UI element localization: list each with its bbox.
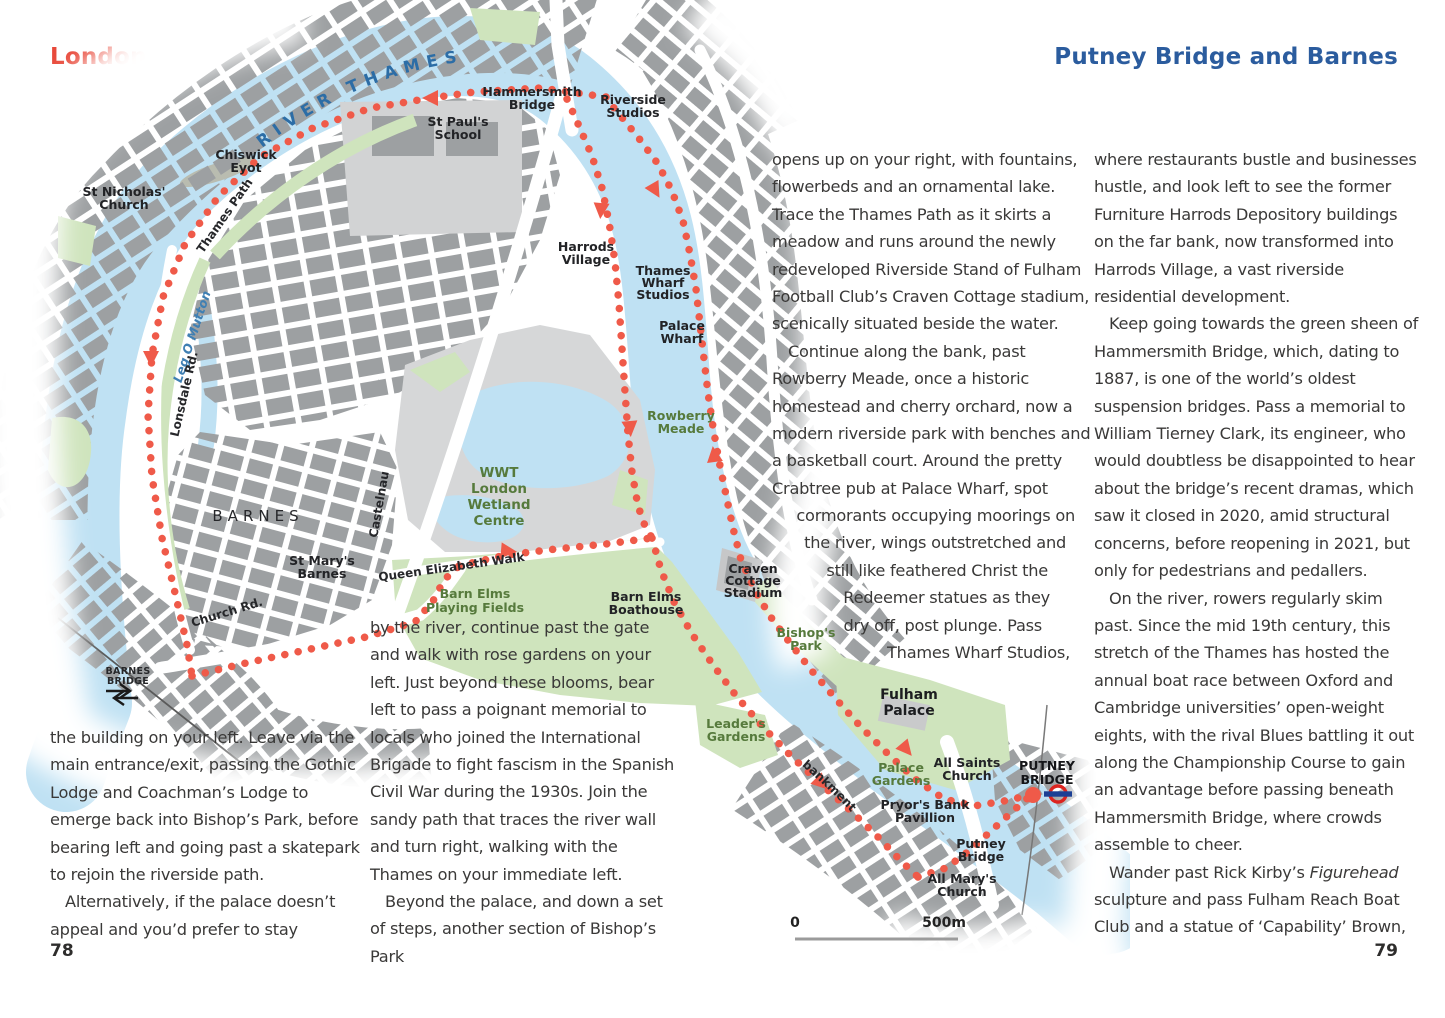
paragraph: the building on your left. Leave via the…: [50, 724, 368, 888]
text-line: cormorants occupying moorings on: [772, 502, 1078, 529]
map-label-wwt-wetland-centre: Centre: [474, 513, 525, 529]
map-label-st-marys-barnes: Barnes: [298, 566, 347, 581]
map-label-harrods-village: Village: [562, 252, 610, 267]
text-line: a basketball court. Around the pretty: [772, 447, 1078, 474]
text-line: modern riverside park with benches and: [772, 420, 1078, 447]
paragraph: Wander past Rick Kirby’s Figurehead scul…: [1094, 859, 1420, 941]
text-line: Crabtree pub at Palace Wharf, spot: [772, 475, 1078, 502]
map-label-chiswick-eyot: Eyot: [230, 160, 261, 175]
text-line: the river, wings outstretched and: [772, 529, 1078, 556]
text-line: flowerbeds and an ornamental lake.: [772, 173, 1078, 200]
map-label-wwt-wetland-centre: Wetland: [467, 497, 530, 513]
text-line: Football Club’s Craven Cottage stadium,: [772, 283, 1078, 310]
text-line: still like feathered Christ the: [772, 557, 1078, 584]
paragraph: where restaurants bustle and businesses …: [1094, 146, 1420, 310]
scale-500m-label: 500m: [922, 915, 966, 931]
map-label-pryors-bank-pavillion: Pavillion: [895, 810, 955, 825]
paragraph: by the river, continue past the gate and…: [370, 614, 678, 888]
scale-zero-label: 0: [790, 915, 800, 931]
text-line: Trace the Thames Path as it skirts a: [772, 201, 1078, 228]
map-label-barnes-bridge: BRIDGE: [107, 676, 149, 687]
paragraph: Keep going towards the green sheen of Ha…: [1094, 310, 1420, 584]
walk-text-column-bottom-left: the building on your left. Leave via the…: [50, 724, 368, 943]
map-label-st-pauls-school: School: [435, 127, 482, 142]
map-label-all-saints-church: Church: [942, 768, 991, 783]
map-label-barn-elms-playing-fields: Playing Fields: [426, 600, 524, 615]
map-label-wwt-wetland-centre: London: [471, 481, 527, 497]
paragraph: Alternatively, if the palace doesn’t app…: [50, 888, 368, 943]
text-line: Thames Wharf Studios,: [772, 639, 1078, 666]
text-line: opens up on your right, with fountains,: [772, 146, 1078, 173]
map-label-putney-bridge: Bridge: [958, 849, 1004, 864]
page-number-left: 78: [50, 941, 74, 961]
map-label-hammersmith-bridge: Bridge: [509, 97, 555, 112]
map-label-st-nicholas-church: Church: [99, 197, 148, 212]
map-label-fulham-palace: Palace: [883, 703, 934, 719]
map-label-barnes: BARNES: [212, 507, 303, 525]
map-label-palace-gardens: Gardens: [872, 773, 931, 788]
walk-text-column-right: where restaurants bustle and businesses …: [1094, 146, 1420, 941]
map-label-palace-wharf: Wharf: [661, 331, 704, 346]
walk-text-column-middle: opens up on your right, with fountains,f…: [772, 146, 1078, 666]
map-label-all-marys-church: Church: [937, 884, 986, 899]
map-label-putney-bridge-station: BRIDGE: [1021, 772, 1074, 787]
text-line: scenically situated beside the water.: [772, 310, 1078, 337]
map-label-thames-wharf-studios: Studios: [636, 287, 689, 302]
paragraph: On the river, rowers regularly skim past…: [1094, 585, 1420, 859]
text-line: meadow and runs around the newly: [772, 228, 1078, 255]
text-line: dry off, post plunge. Pass: [772, 612, 1078, 639]
walk-text-column-bottom-middle: by the river, continue past the gate and…: [370, 614, 678, 970]
map-label-rowberry-meade: Meade: [658, 421, 705, 436]
green-top-patch: [470, 8, 540, 45]
map-label-wwt-wetland-centre: WWT: [480, 465, 520, 481]
text-line: redeveloped Riverside Stand of Fulham: [772, 256, 1078, 283]
text-line: Continue along the bank, past: [772, 338, 1078, 365]
text-line: Rowberry Meade, once a historic: [772, 365, 1078, 392]
map-label-riverside-studios: Studios: [606, 105, 659, 120]
map-label-fulham-palace: Fulham: [880, 687, 938, 703]
text-line: Redeemer statues as they: [772, 584, 1078, 611]
map-label-barn-elms-playing-fields: Barn Elms: [440, 586, 511, 601]
paragraph: Beyond the palace, and down a set of ste…: [370, 888, 678, 970]
text-line: homestead and cherry orchard, now a: [772, 393, 1078, 420]
page-number-right: 79: [1374, 941, 1398, 961]
map-label-putney-bridge-station: PUTNEY: [1019, 758, 1076, 773]
walk-start-dot: [1025, 787, 1041, 803]
map-label-leaders-gardens: Gardens: [707, 729, 766, 744]
